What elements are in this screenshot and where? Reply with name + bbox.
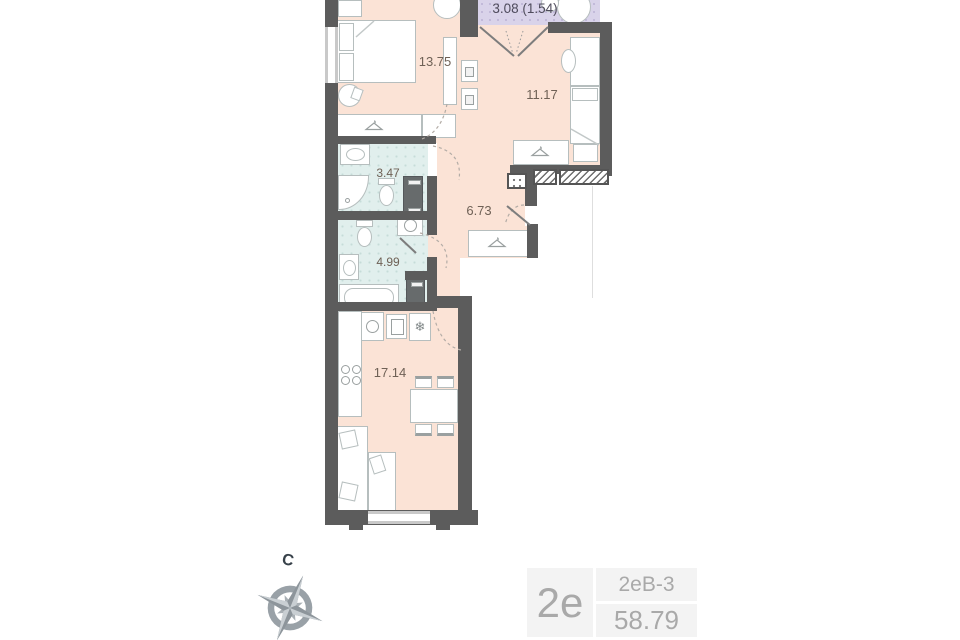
room-label-bedroom2: 11.17 [517,87,567,102]
shaft-hatched [559,169,609,185]
apartment-type-label: 2е [537,579,584,627]
compass: С [240,550,344,640]
wall-living-right [458,296,472,525]
stove-burner [341,365,350,374]
dining-chair [437,376,454,388]
cabinet-handle [408,180,421,185]
kitchen-counter [338,311,362,417]
bed-pillow [339,23,354,51]
toilet-bowl [379,185,394,206]
dining-chair [437,424,454,436]
apartment-type-cell: 2е [527,568,593,637]
toilet-bowl [357,227,372,247]
electrical-panel [507,173,527,189]
basin-bowl [343,260,356,276]
window-bedroom [325,27,338,83]
room-label-shower-room: 3.47 [363,166,413,180]
hanger-icon [487,237,507,248]
building-outline [592,186,593,298]
wall-bedroom-bath [338,136,436,144]
sink-bowl [366,320,379,333]
wall-kitchen-stub [427,296,458,308]
toilet [356,220,373,227]
shower-drain [345,198,350,203]
dining-table [410,389,458,423]
oven-door [391,319,404,335]
total-area-label: 58.79 [614,605,679,636]
washer-drum [404,219,417,232]
wall-kitchen-top [338,302,437,311]
bedroom2-nightstand [573,144,598,162]
floor-plan-page: ❄ [0,0,960,640]
total-area-cell: 58.79 [596,604,697,637]
basin-bowl [346,148,365,161]
stove-burner [341,376,350,385]
bed-pillow [339,53,354,81]
shelf-handle [465,95,474,105]
shelf-unit [461,88,478,110]
window-sill-mark [436,525,450,530]
wall-entry-lower [527,224,538,258]
bedroom-nightstand [338,0,362,17]
room-label-balcony: 3.08 (1.54) [470,1,580,16]
shaft-hatched [533,169,557,185]
partition-bedroom [443,37,457,105]
snowflake-icon: ❄ [415,319,426,335]
stove-burner [352,365,361,374]
single-bed-pillow [572,88,598,101]
layout-code-cell: 2еВ-3 [596,568,697,601]
washbasin [340,144,370,165]
sofa-pillow [338,429,358,449]
stove-burner [352,376,361,385]
kitchen-sink [361,312,384,341]
shelf-unit [461,60,478,82]
oven-microwave [386,314,407,339]
desk-chair [561,49,576,73]
wall-bath-right-b [427,213,437,235]
shelf-handle [465,67,474,77]
room-label-kitchen-living: 17.14 [365,365,415,380]
sofa-pillow [338,481,358,501]
room-label-bedroom: 13.75 [410,54,460,69]
room-label-bathroom: 4.99 [363,255,413,269]
window-sill-mark [349,525,363,530]
bedroom-side-cabinet [422,114,456,138]
wall-outer-right [600,22,612,176]
cabinet-handle [411,282,423,287]
hanger-icon [364,120,384,131]
wall-bath-stub [405,271,429,280]
room-label-hallway: 6.73 [454,203,504,218]
tall-cabinet [403,176,423,214]
wall-bath-divider [338,211,427,220]
refrigerator: ❄ [409,313,431,341]
dining-chair [415,376,432,388]
window-living [368,511,430,524]
layout-code-label: 2еВ-3 [618,573,674,597]
hanger-icon [530,146,550,157]
dining-chair [415,424,432,436]
wall-bath-right-a [427,176,437,213]
washbasin [339,254,359,280]
